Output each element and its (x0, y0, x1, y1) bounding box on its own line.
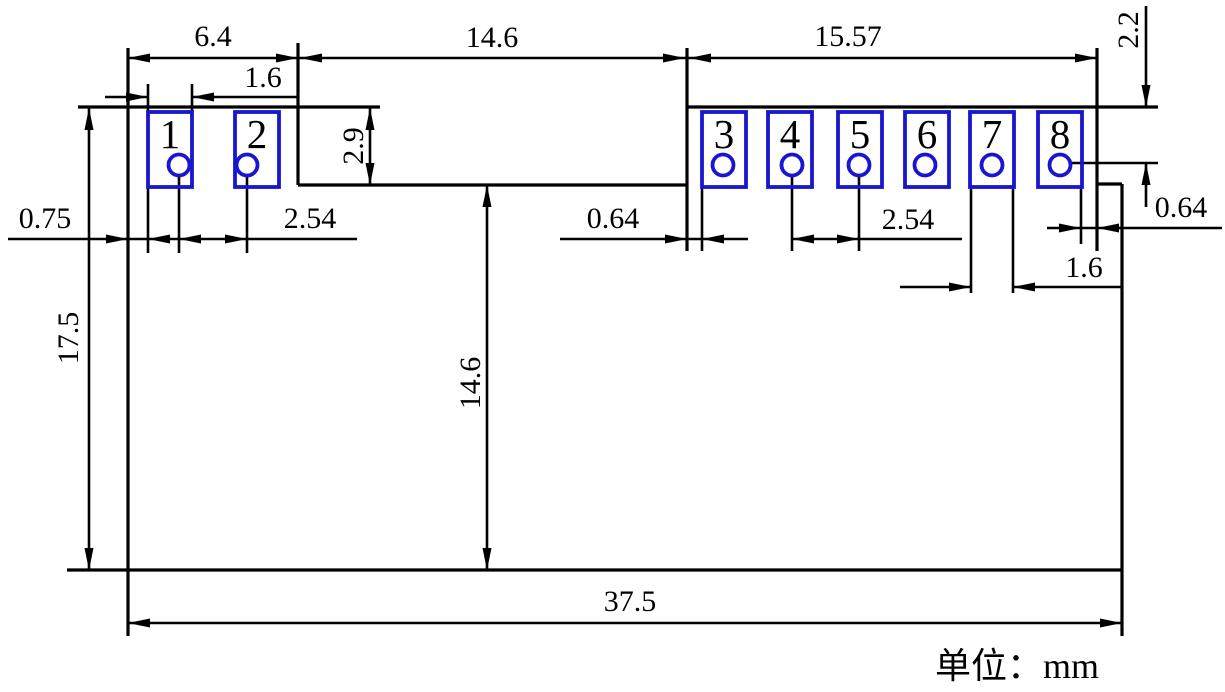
arrowhead (1059, 224, 1081, 233)
pads (148, 112, 1082, 187)
pad-5-hole (849, 155, 870, 176)
arrowhead (85, 548, 94, 570)
dim-label-left-section-height: 2.9 (337, 127, 370, 165)
dim-label-body-height: 17.5 (52, 312, 85, 365)
pad-3-hole (713, 155, 734, 176)
pad-label-6: 6 (917, 111, 938, 157)
arrowhead (192, 93, 214, 102)
pad-4-hole (782, 155, 803, 176)
dimension-lines (8, 6, 1222, 623)
pad-label-7: 7 (982, 111, 1003, 157)
arrowhead (128, 619, 150, 628)
arrowhead (106, 235, 128, 244)
dim-label-left-pitch: 2.54 (284, 202, 337, 235)
arrowhead (483, 185, 492, 207)
pad-8-hole (1050, 155, 1071, 176)
footprint-drawing: 1 2 3 4 5 6 7 8 6.4 14.6 15.57 1.6 0.75 … (0, 0, 1225, 692)
arrowhead (366, 108, 375, 130)
dim-label-pad7-width: 1.6 (1065, 251, 1103, 284)
arrowhead (1100, 619, 1122, 628)
pad-numbers: 1 2 3 4 5 6 7 8 (160, 111, 1071, 157)
arrowhead (300, 54, 322, 63)
arrowhead (1013, 283, 1035, 292)
arrowhead (665, 235, 687, 244)
dim-label-top-left-width: 6.4 (194, 20, 232, 53)
unit-note: 单位：mm (935, 646, 1099, 686)
arrowhead (366, 163, 375, 185)
arrowhead (663, 54, 685, 63)
dimension-labels: 6.4 14.6 15.57 1.6 0.75 2.54 0.64 2.54 0… (19, 11, 1208, 618)
dim-label-right-pitch: 2.54 (882, 203, 935, 236)
pad-label-3: 3 (714, 111, 735, 157)
arrowhead (837, 235, 859, 244)
arrowhead (128, 54, 150, 63)
arrowhead (225, 235, 247, 244)
pad-6-hole (915, 155, 936, 176)
dim-label-top-edge-to-hole-row: 2.2 (1112, 11, 1145, 49)
arrowhead (1142, 163, 1151, 185)
dim-label-pad8-to-right-edge: 0.64 (1155, 191, 1208, 224)
pad-label-2: 2 (247, 111, 268, 157)
pad-label-4: 4 (780, 111, 801, 157)
arrowhead (1142, 85, 1151, 107)
arrowhead (483, 548, 492, 570)
drawing-canvas: 1 2 3 4 5 6 7 8 6.4 14.6 15.57 1.6 0.75 … (0, 0, 1225, 692)
arrowhead (689, 54, 711, 63)
dim-label-notch-to-pad3: 0.64 (587, 202, 640, 235)
arrowhead (702, 235, 724, 244)
pad-label-1: 1 (160, 111, 181, 157)
dim-label-top-right-width: 15.57 (814, 20, 882, 53)
dim-label-total-width: 37.5 (604, 585, 657, 618)
pad-label-5: 5 (850, 111, 871, 157)
dim-label-notch-depth: 14.6 (454, 357, 487, 410)
pad-2-hole (237, 155, 258, 176)
arrowhead (1097, 224, 1119, 233)
pad-label-8: 8 (1050, 111, 1071, 157)
arrowhead (949, 283, 971, 292)
dim-label-left-edge-to-pad1: 0.75 (19, 202, 72, 235)
arrowhead (126, 93, 148, 102)
dim-label-pad1-width: 1.6 (244, 61, 282, 94)
arrowhead (85, 108, 94, 130)
arrowhead (792, 235, 814, 244)
pad-1-hole (169, 155, 190, 176)
arrowhead (148, 235, 170, 244)
pad-7-hole (982, 155, 1003, 176)
dim-label-notch-width: 14.6 (466, 21, 519, 54)
arrowhead (1075, 54, 1097, 63)
arrowhead (179, 235, 201, 244)
